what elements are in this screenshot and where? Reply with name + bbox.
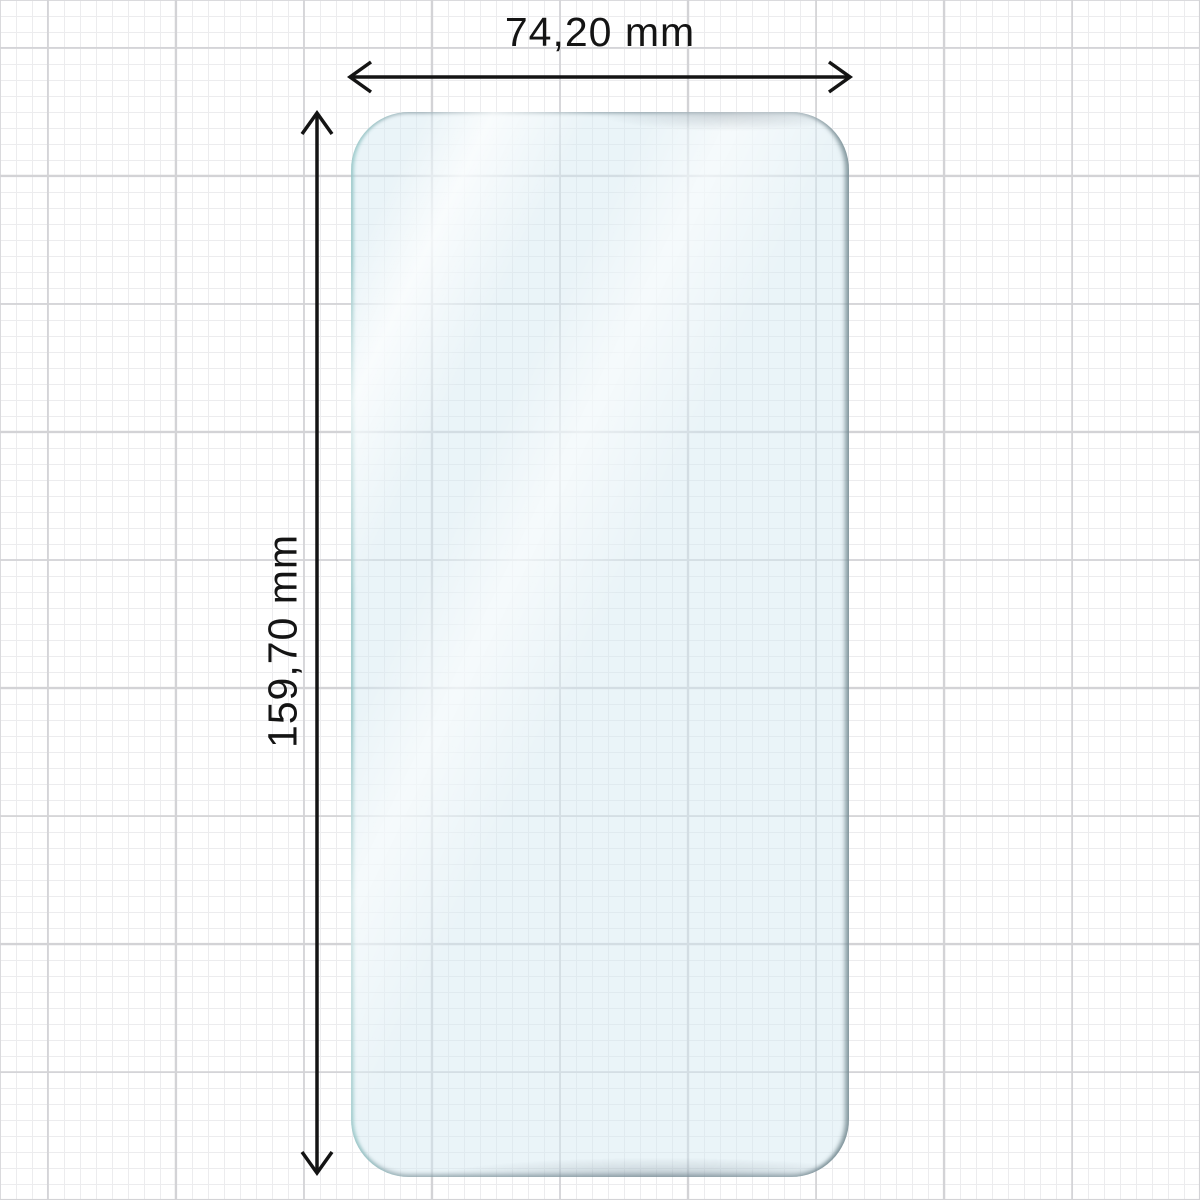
height-dimension-label: 159,70 mm	[263, 534, 304, 748]
width-dimension-arrow-icon	[341, 57, 859, 97]
width-dimension-label: 74,20 mm	[351, 12, 849, 53]
dimension-diagram: 74,20 mm 159,70 mm	[0, 0, 1200, 1200]
glare-highlight	[351, 112, 849, 1177]
screen-protector-film	[351, 112, 849, 1177]
